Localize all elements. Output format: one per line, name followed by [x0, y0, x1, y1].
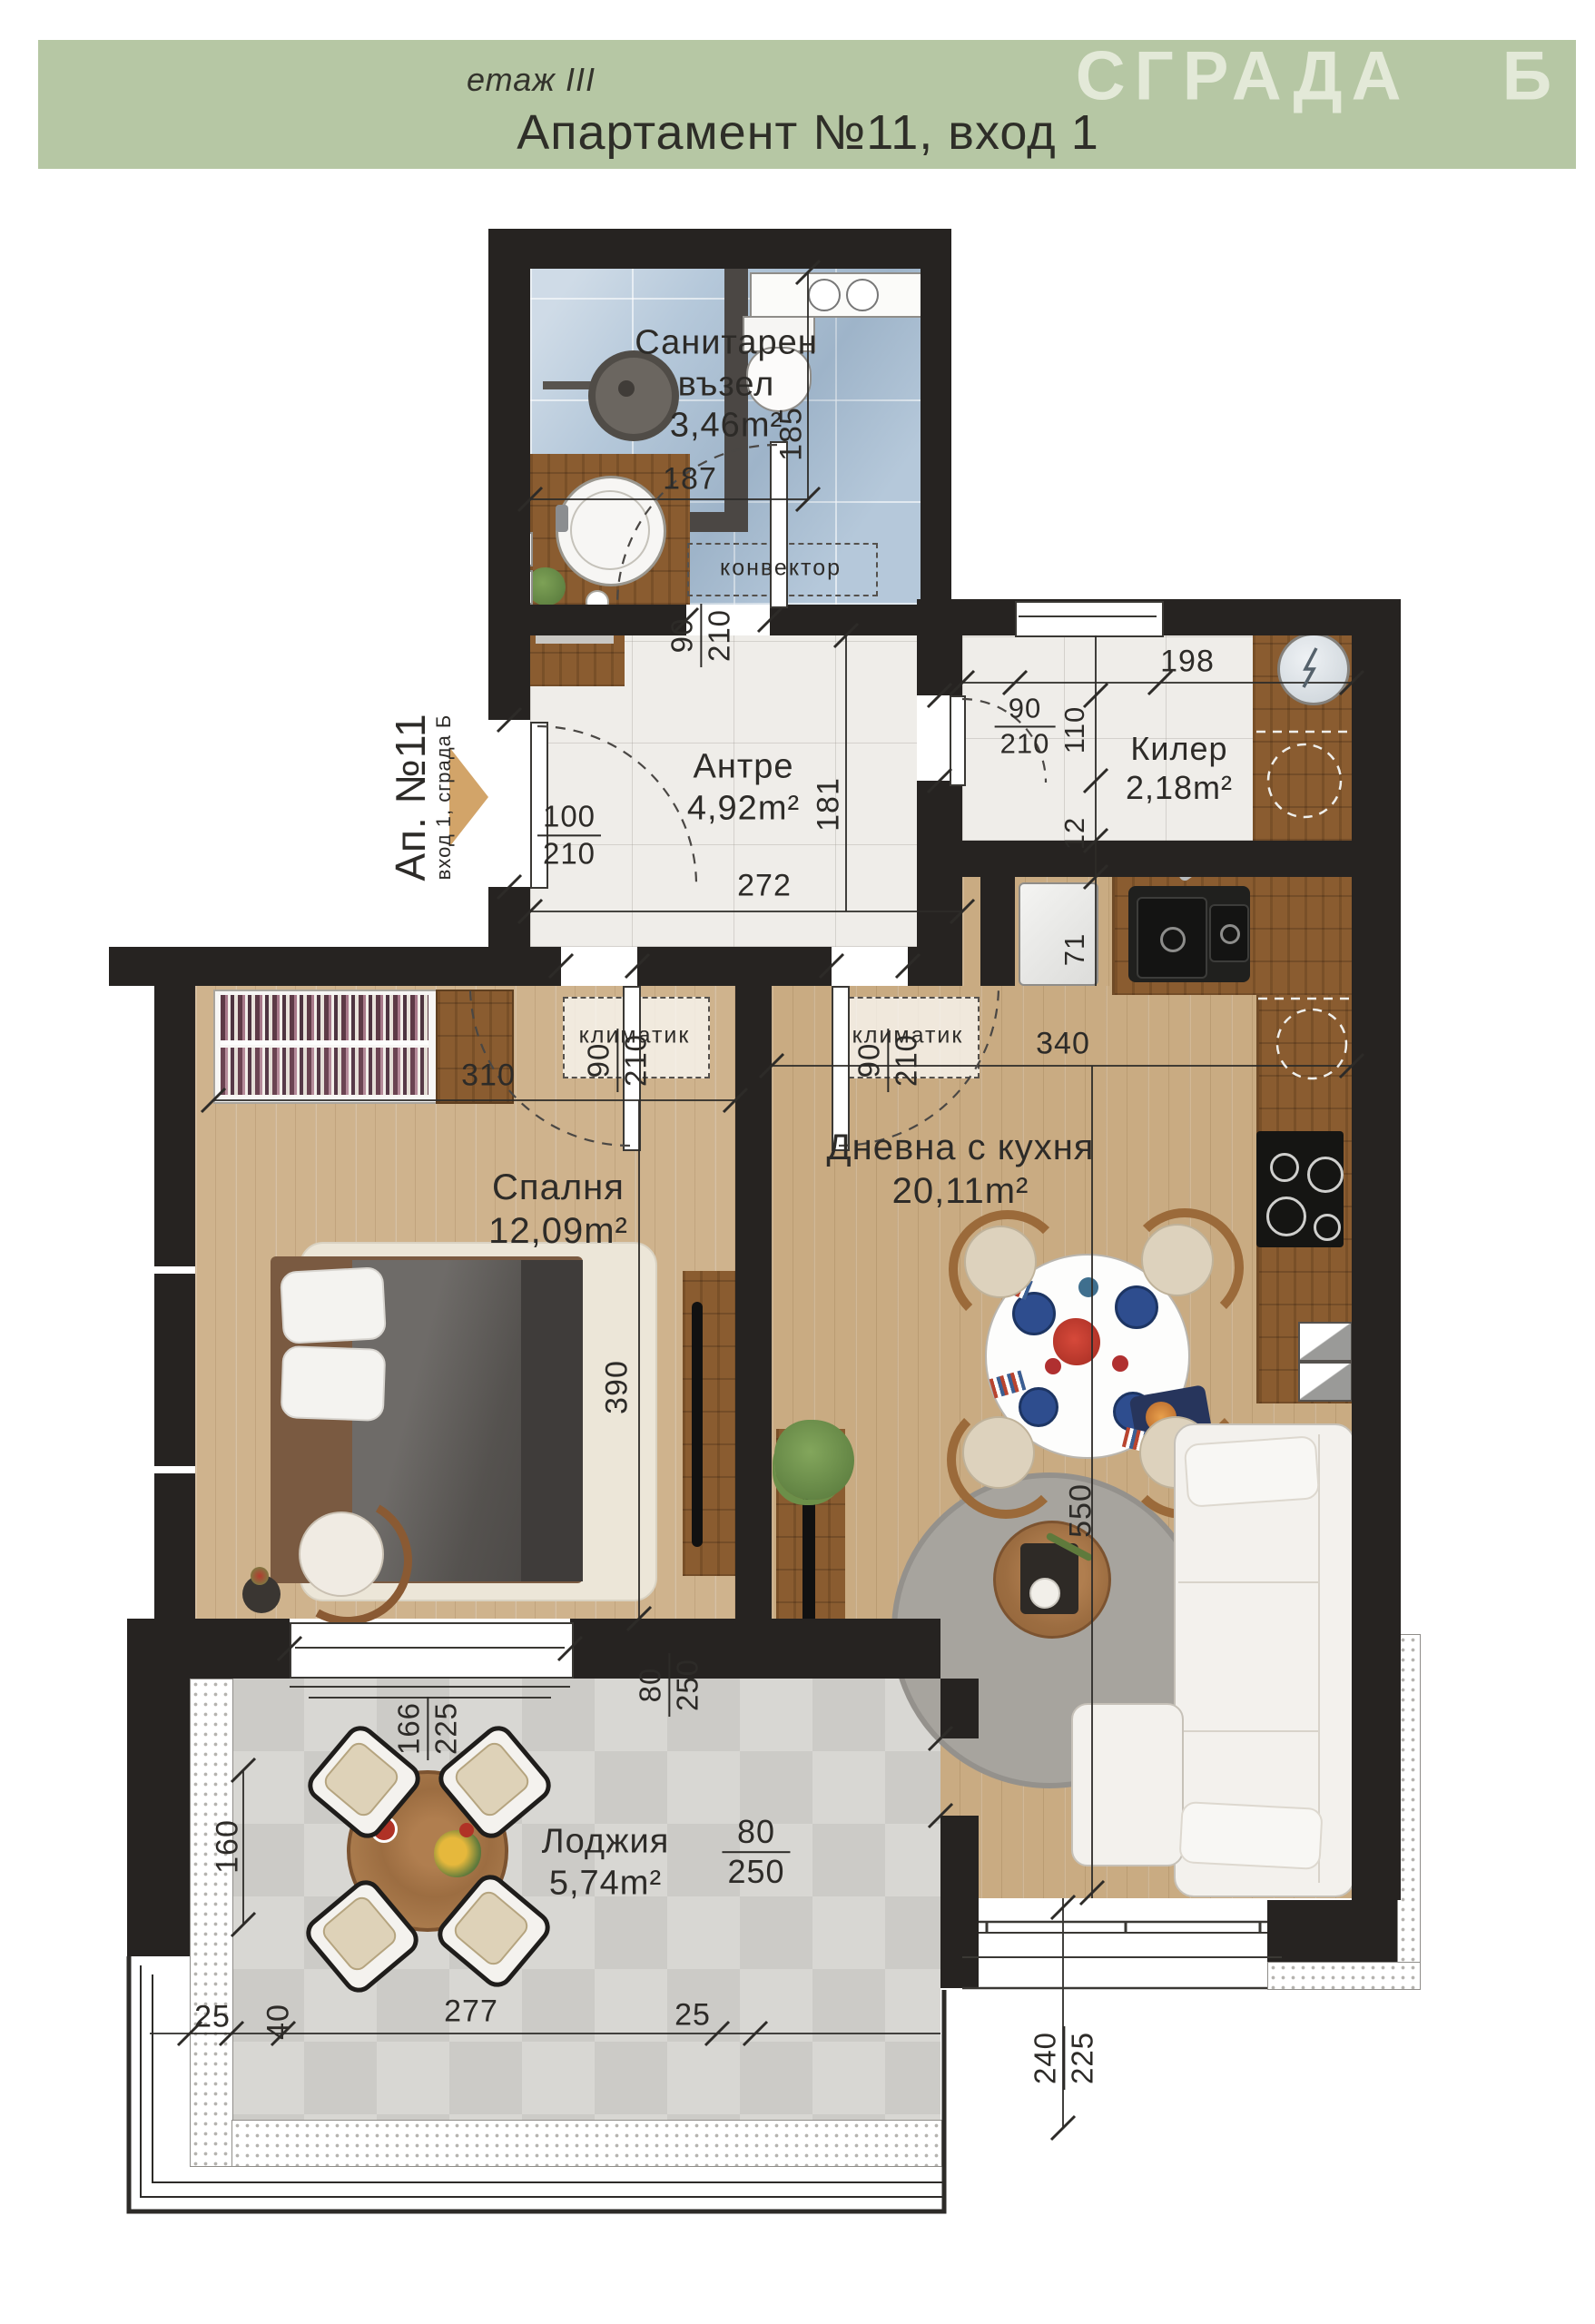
page-title: Апартамент №11, вход 1 — [517, 104, 1098, 161]
bed-pillow-2 — [281, 1345, 387, 1422]
dim-living-window: 240225 — [1029, 2026, 1098, 2090]
oven-symbol-bottom — [1298, 1362, 1353, 1402]
antre-name: Антре — [687, 746, 800, 788]
sofa-chaise — [1071, 1703, 1184, 1866]
door-leaf-bathroom — [770, 441, 788, 608]
wardrobe-rod — [221, 1040, 428, 1045]
wardrobe-hangers-row1 — [221, 995, 428, 1042]
bathroom-name-line1: Санитарен — [635, 323, 818, 365]
dim-wall-b: 12 — [1058, 817, 1091, 850]
dim-balcony-door-living: 80250 — [722, 1815, 790, 1889]
building-label: СГРАДА Б — [1076, 37, 1561, 116]
wall — [917, 635, 962, 695]
wall — [735, 986, 772, 1625]
dim-antre-width: 272 — [737, 869, 792, 904]
bedroom-area: 12,09m² — [488, 1209, 628, 1253]
wall — [917, 781, 962, 947]
wall — [962, 841, 1352, 877]
bath-cabinet-bowl-right — [846, 279, 879, 311]
bedroom-chair-seat — [299, 1512, 384, 1597]
sofa-pillow-2 — [1178, 1801, 1323, 1870]
bathroom-name-line2: възел — [635, 364, 818, 406]
kiler-window — [1015, 601, 1164, 637]
dim-bath-height: 185 — [774, 407, 810, 461]
entrance-entry-label: вход 1, сграда Б — [432, 714, 456, 881]
dim-loggia-25-left: 25 — [194, 2000, 231, 2035]
sofa-pillow-1 — [1184, 1435, 1321, 1508]
dim-kiler-door: 90210 — [995, 694, 1056, 758]
dim-entry-door: 100210 — [537, 801, 601, 869]
bedroom-window — [290, 1622, 574, 1679]
wardrobe-hangers-row2 — [221, 1048, 428, 1095]
entrance-apartment-label: Ап. №11 — [386, 713, 435, 881]
dim-living-door: 90210 — [853, 1029, 921, 1092]
convector-label: конвектор — [720, 556, 842, 582]
bedroom-tv-panel — [683, 1271, 735, 1576]
dining-cup-2 — [1045, 1358, 1061, 1374]
loggia-hatch-left — [190, 1679, 233, 2167]
dining-flowers — [1053, 1318, 1100, 1365]
wall — [127, 1663, 190, 1956]
wall — [570, 1619, 940, 1679]
dim-wall-a: 71 — [1058, 933, 1091, 966]
dim-bedroom-door: 90210 — [583, 1029, 651, 1092]
cooktop-burner-4 — [1314, 1214, 1341, 1241]
dim-bedroom-width: 310 — [461, 1059, 516, 1094]
cooktop-burner-2 — [1307, 1157, 1344, 1193]
wall-notch — [154, 1466, 195, 1473]
wall — [530, 605, 686, 635]
corner-hatch-bottom — [1267, 1962, 1421, 1990]
wall — [770, 605, 921, 635]
wall — [109, 947, 561, 986]
bath-cabinet-bowl-left — [808, 279, 841, 311]
kitchen-sink-drain-left — [1160, 927, 1186, 952]
wall — [940, 1679, 979, 1738]
bedroom-label: Спалня 12,09m² — [488, 1166, 628, 1253]
wall — [154, 986, 195, 1619]
wall — [980, 877, 1015, 986]
living-label: Дневна с кухня 20,11m² — [827, 1126, 1095, 1213]
dim-living-width: 340 — [1036, 1027, 1090, 1062]
bedroom-window-line — [295, 1647, 565, 1649]
dining-cup-1 — [1078, 1277, 1098, 1297]
loggia-name: Лоджия — [542, 1821, 670, 1863]
loggia-hatch-bottom — [231, 2120, 942, 2167]
dim-kiler-width: 198 — [1160, 645, 1215, 680]
hall-cabinet-shelf — [536, 635, 614, 644]
dim-bath-door: 90210 — [666, 604, 734, 667]
bed-foot-throw — [521, 1260, 583, 1581]
sofa-seam-2 — [1178, 1730, 1320, 1732]
kiler-label: Килер 2,18m² — [1126, 729, 1233, 807]
cooktop-burner-1 — [1270, 1153, 1299, 1182]
dining-chair-back-sw — [947, 1401, 1065, 1519]
door-leaf-kiler — [950, 695, 966, 786]
dim-kiler-niche: 110 — [1058, 706, 1091, 753]
kiler-name: Килер — [1126, 729, 1233, 768]
wall — [940, 1816, 979, 1988]
bedroom-name: Спалня — [488, 1166, 628, 1209]
bath-sink-inner — [570, 490, 650, 570]
floor-label: етаж III — [467, 61, 596, 99]
living-area: 20,11m² — [827, 1169, 1095, 1213]
living-name: Дневна с кухня — [827, 1126, 1095, 1169]
dim-loggia-width: 277 — [444, 1994, 498, 2030]
antre-label: Антре 4,92m² — [687, 746, 800, 829]
coffee-table-vase — [1029, 1578, 1060, 1609]
loggia-label: Лоджия 5,74m² — [542, 1821, 670, 1904]
wall — [908, 947, 962, 986]
kiler-window-line — [1019, 615, 1157, 617]
wall — [488, 229, 951, 269]
dim-balcony-door-bedroom: 80250 — [635, 1653, 703, 1717]
wall — [921, 229, 951, 635]
dim-living-length: 550 — [1064, 1483, 1099, 1538]
loggia-berries — [459, 1823, 474, 1837]
sofa-seam-1 — [1178, 1581, 1320, 1583]
shower-head-center — [618, 380, 635, 397]
living-window-band — [979, 1898, 1267, 1988]
wall — [637, 947, 832, 986]
kiler-area: 2,18m² — [1126, 768, 1233, 807]
dim-bedroom-length: 390 — [600, 1360, 635, 1414]
wall — [488, 887, 530, 947]
wall — [488, 229, 530, 720]
dining-chair-back-ne — [1126, 1208, 1244, 1326]
bedroom-side-flowers — [251, 1567, 269, 1585]
bed-pillow-1 — [280, 1266, 387, 1344]
dim-bath-width: 187 — [663, 462, 717, 497]
wall — [1267, 1900, 1397, 1962]
bedroom-tv — [692, 1302, 703, 1547]
dim-loggia-25-right: 25 — [674, 1998, 711, 2033]
cooktop-burner-3 — [1266, 1196, 1306, 1236]
kitchen-sink-drain-right — [1220, 924, 1240, 944]
dim-loggia-40: 40 — [261, 2004, 297, 2040]
floor-plan-page: етаж III Апартамент №11, вход 1 СГРАДА Б — [0, 0, 1595, 2324]
living-plant — [774, 1420, 854, 1500]
dim-bedroom-window: 166225 — [393, 1697, 461, 1760]
dining-cup-3 — [1112, 1355, 1128, 1372]
dining-chair-back-nw — [949, 1210, 1067, 1328]
antre-area: 4,92m² — [687, 788, 800, 830]
wall-notch — [154, 1266, 195, 1274]
bath-faucet — [556, 505, 568, 532]
loggia-area: 5,74m² — [542, 1863, 670, 1905]
oven-symbol-top — [1298, 1322, 1353, 1362]
water-heater — [1277, 633, 1350, 705]
wall — [1352, 599, 1401, 1900]
dim-antre-length: 181 — [812, 777, 847, 832]
bath-plant — [527, 567, 566, 606]
dim-loggia-length: 160 — [211, 1819, 246, 1874]
